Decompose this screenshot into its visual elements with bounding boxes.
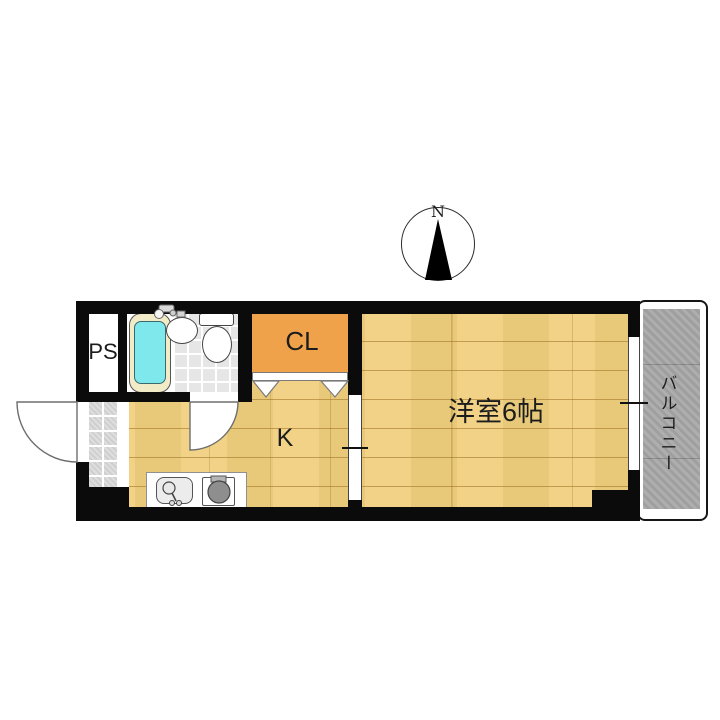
wall-pillar-bottom-right bbox=[592, 490, 640, 521]
entrance-opening bbox=[76, 402, 89, 462]
wall-bath-bottom-left bbox=[76, 392, 190, 402]
washbasin-icon bbox=[166, 317, 198, 344]
western-room-label: 洋室6帖 bbox=[400, 393, 592, 425]
closet-bifold-door-rail bbox=[252, 372, 348, 381]
floorplan-canvas: N bbox=[0, 0, 720, 720]
wall-mid-upper bbox=[348, 301, 362, 395]
toilet-tank-icon bbox=[199, 313, 234, 326]
compass: N bbox=[401, 207, 475, 281]
toilet-icon bbox=[202, 326, 232, 363]
compass-north-label: N bbox=[426, 201, 450, 221]
sliding-door-tick bbox=[342, 447, 368, 449]
balcony-label: バルコニー bbox=[653, 350, 681, 498]
bathtub-water bbox=[134, 321, 166, 384]
kitchen-sink-icon bbox=[156, 477, 193, 504]
balcony-window-tick bbox=[620, 402, 648, 404]
entrance-door-arc-icon bbox=[17, 402, 77, 462]
closet-label: CL bbox=[272, 326, 332, 356]
wall-bath-closet bbox=[238, 301, 252, 402]
wall-right-upper bbox=[628, 301, 640, 337]
bathroom-doorway bbox=[190, 392, 238, 402]
genkan-step bbox=[119, 402, 129, 487]
genkan-tile-floor bbox=[89, 402, 119, 487]
stove-icon bbox=[202, 477, 235, 506]
kitchen-label: K bbox=[264, 423, 306, 453]
ps-label: PS bbox=[84, 339, 122, 365]
wall-mid-lower bbox=[348, 500, 362, 521]
